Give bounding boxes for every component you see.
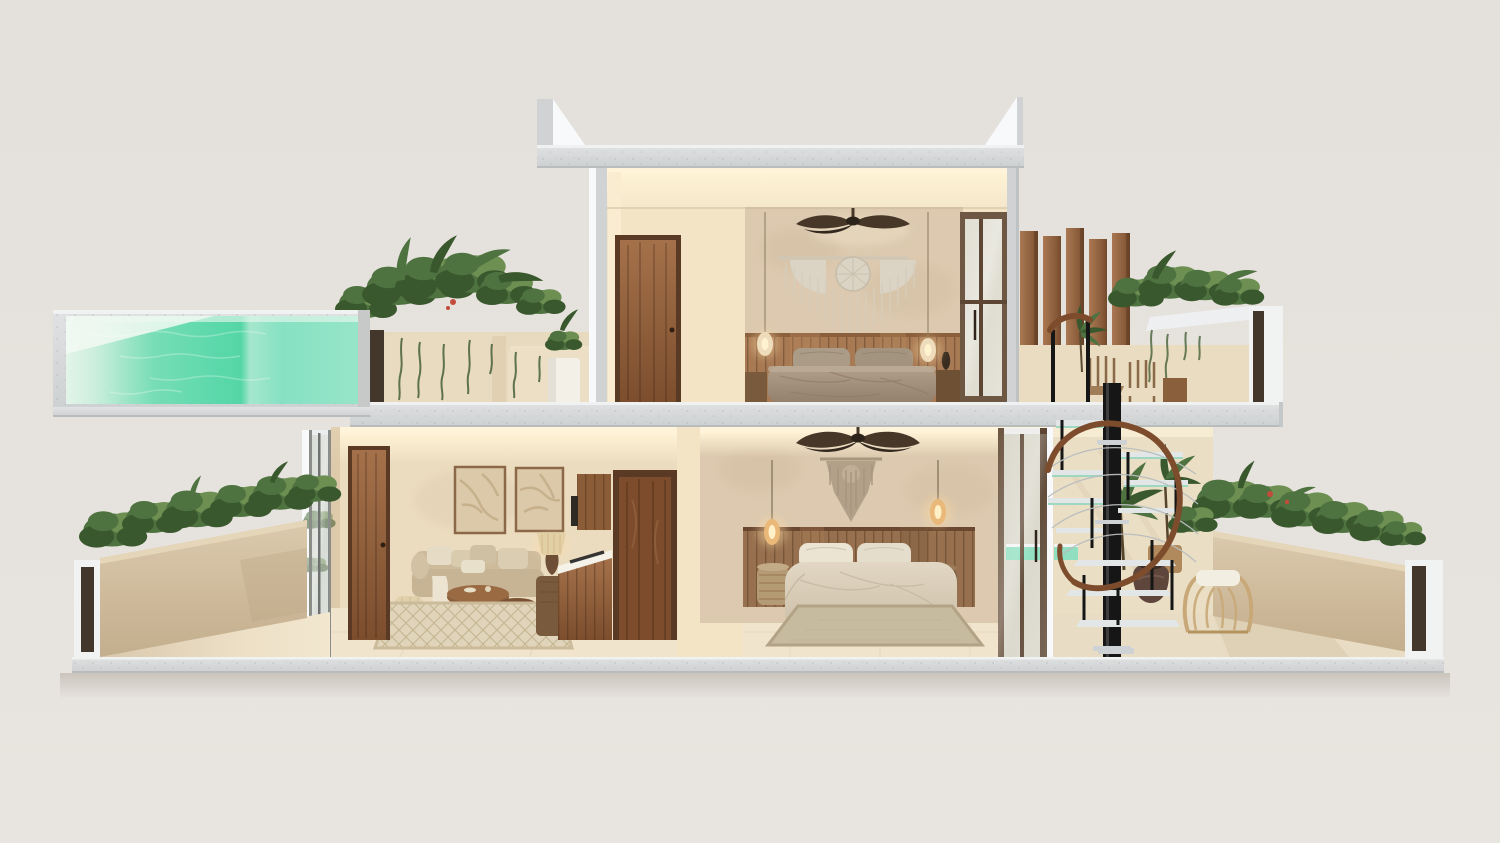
upper-walnut-door: [615, 235, 681, 403]
upper-nightstand-left: [745, 372, 767, 403]
sofa-pillow: [427, 546, 453, 565]
upper-bedroom: [589, 167, 1019, 427]
mid-floor-slab: [350, 402, 1283, 427]
tall-pantry-door: [613, 470, 677, 640]
wall-art-left: [455, 467, 505, 533]
living-room: [375, 467, 677, 648]
wall-art-right: [516, 468, 563, 531]
flower-accent: [450, 299, 456, 305]
lower-bedroom: [677, 427, 1000, 657]
wood-side-box: [1163, 378, 1187, 405]
render-canvas: [0, 0, 1500, 843]
lap-pool: [53, 310, 370, 417]
lower-glass-slider-right: [998, 428, 1047, 657]
door-handle: [670, 328, 675, 333]
villa-cutaway-render: [0, 0, 1500, 843]
bedroom-rug: [768, 606, 982, 645]
table-bowl: [464, 588, 476, 593]
dark-wall-panel: [571, 496, 578, 526]
ground-slab: [72, 657, 1444, 673]
ground-contact-shadow: [60, 673, 1450, 699]
planter-box-large: [386, 334, 506, 406]
lower-floor: [301, 427, 1048, 657]
upper-glass-slider: [960, 212, 1007, 403]
upper-nightstand-right: [936, 370, 960, 403]
lower-walnut-door: [348, 446, 390, 640]
chair-cushion: [1196, 570, 1240, 586]
